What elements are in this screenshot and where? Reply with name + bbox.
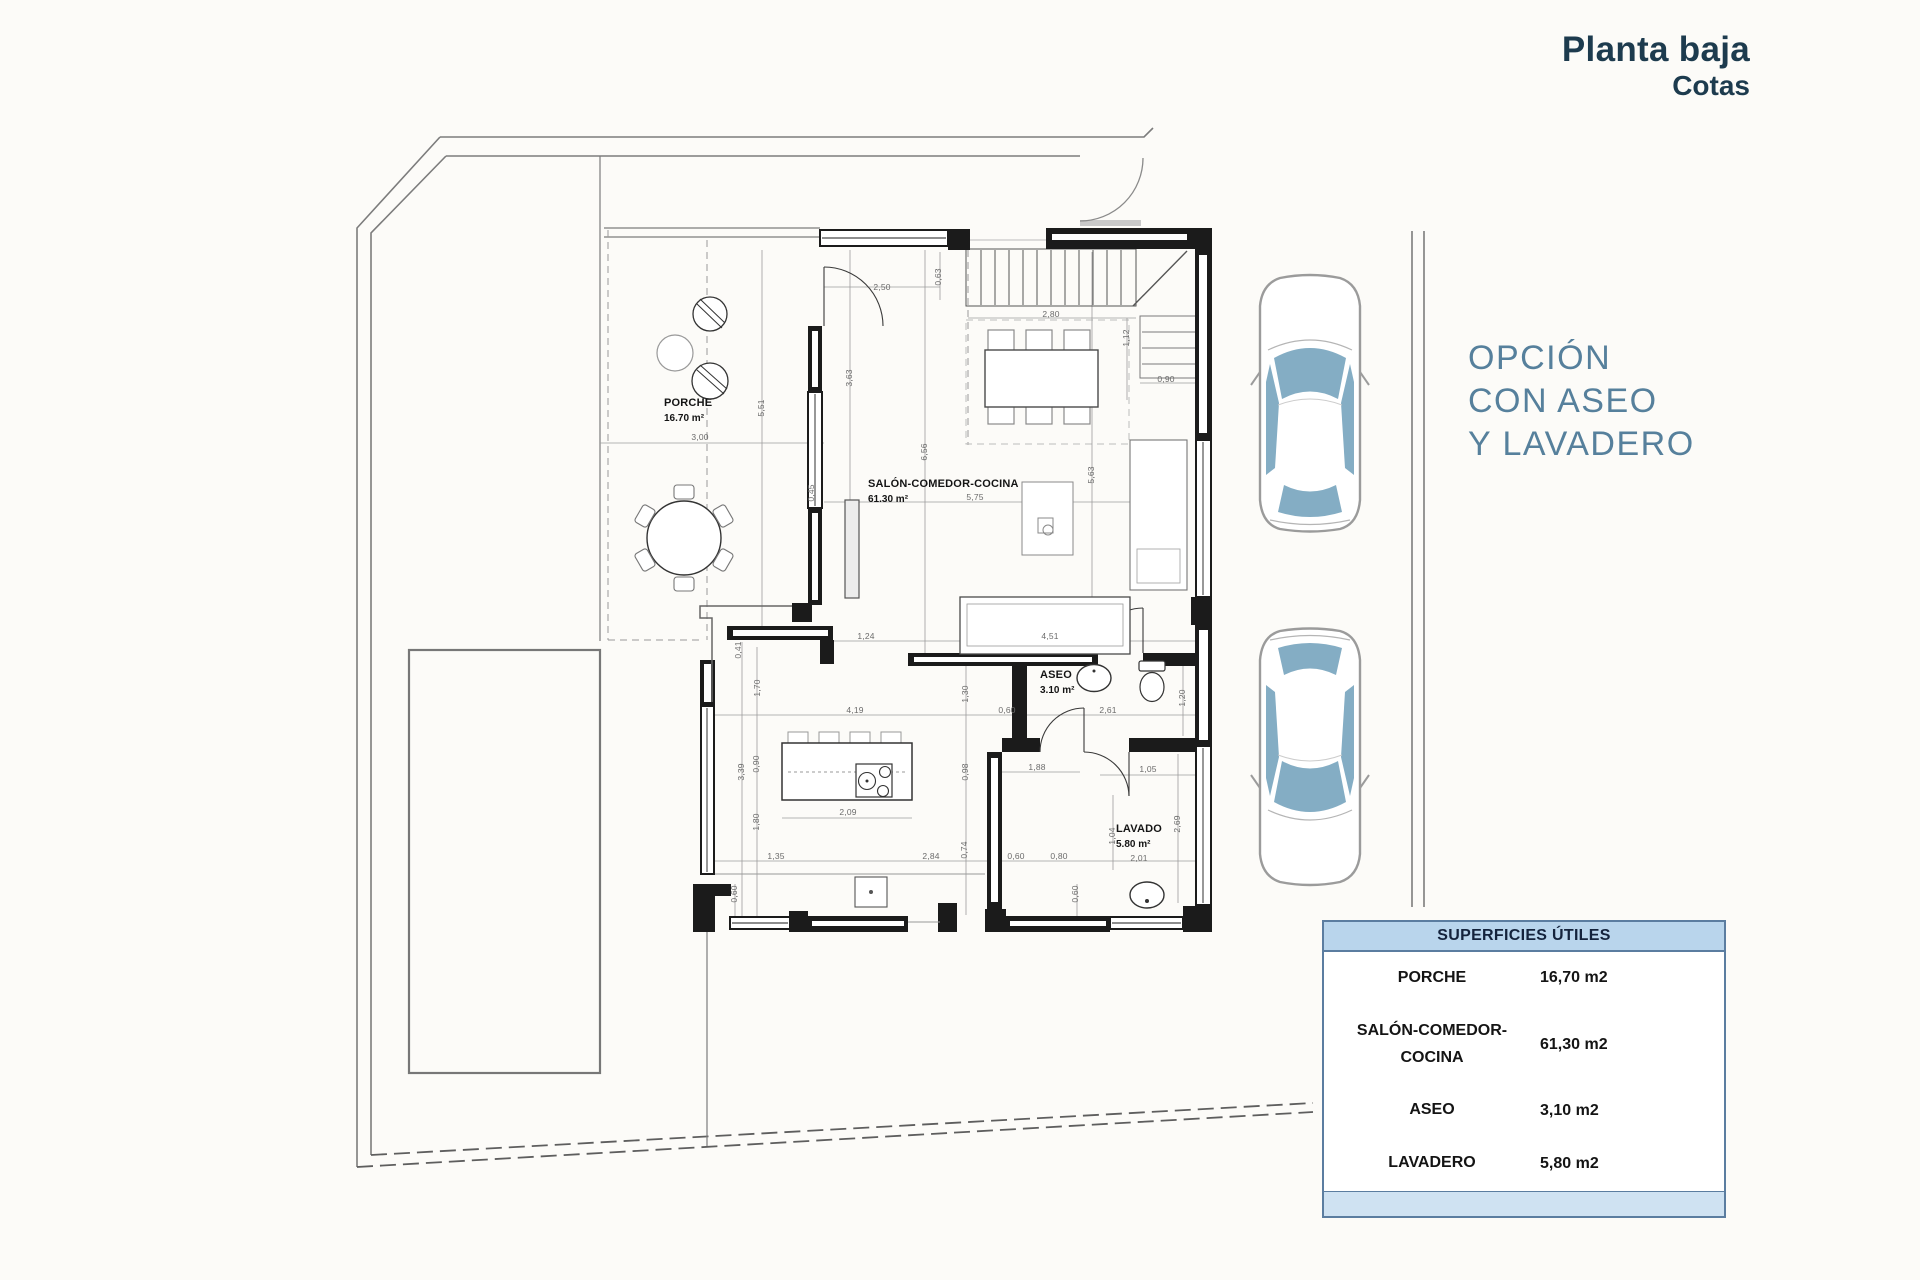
areas-table-header: SUPERFICIES ÚTILES <box>1324 922 1724 952</box>
dining-table-set <box>985 330 1098 424</box>
room-name: PORCHE <box>664 396 712 410</box>
door-swings <box>824 240 1143 922</box>
option-note: OPCIÓN CON ASEO Y LAVADERO <box>1468 337 1695 465</box>
dim-label: 1,88 <box>1028 762 1045 772</box>
room-label-salon: SALÓN-COMEDOR-COCINA61.30 m² <box>868 477 1019 506</box>
dim-label: 0,60 <box>1007 851 1024 861</box>
dim-label: 1,80 <box>751 813 761 830</box>
dim-label: 1,30 <box>960 685 970 702</box>
sheet-title: Planta baja Cotas <box>1562 30 1750 102</box>
areas-table-row-value: 5,80 m2 <box>1540 1155 1599 1173</box>
living-furniture <box>845 440 1187 654</box>
areas-table: SUPERFICIES ÚTILES PORCHE16,70 m2SALÓN-C… <box>1322 920 1726 1218</box>
areas-table-row-value: 3,10 m2 <box>1540 1102 1599 1120</box>
dim-label: 1,70 <box>752 679 762 696</box>
lavadero-fixtures <box>1130 882 1164 908</box>
dim-label: 0,98 <box>960 763 970 780</box>
areas-table-row: ASEO3,10 m2 <box>1324 1097 1724 1123</box>
areas-table-row-label: LAVADERO <box>1324 1150 1540 1176</box>
porch-furniture <box>634 297 734 591</box>
dim-label: 3,00 <box>691 432 708 442</box>
room-area: 5.80 m² <box>1116 838 1162 851</box>
dim-label: 3,63 <box>844 369 854 386</box>
dim-label: 4,51 <box>1041 631 1058 641</box>
dim-label: 1,35 <box>767 851 784 861</box>
dim-label: 2,84 <box>922 851 939 861</box>
dim-label: 0,74 <box>959 841 969 858</box>
areas-table-rows: PORCHE16,70 m2SALÓN-COMEDOR-COCINA61,30 … <box>1324 952 1724 1190</box>
dim-label: 2,09 <box>839 807 856 817</box>
dim-label: 0,60 <box>729 885 739 902</box>
areas-table-row-label: SALÓN-COMEDOR-COCINA <box>1324 1018 1540 1071</box>
dim-label: 2,50 <box>873 282 890 292</box>
room-area: 61.30 m² <box>868 493 1019 506</box>
option-note-line1: OPCIÓN <box>1468 337 1695 380</box>
dim-label: 4,19 <box>846 705 863 715</box>
dim-label: 2,61 <box>1099 705 1116 715</box>
page: { "title": { "line1": "Planta baja", "li… <box>0 0 1920 1280</box>
dim-label: 6,56 <box>919 443 929 460</box>
dim-label: 0,41 <box>733 641 743 658</box>
option-note-line3: Y LAVADERO <box>1468 423 1695 466</box>
sheet-title-main: Planta baja <box>1562 30 1750 70</box>
dim-label: 0,60 <box>1070 885 1080 902</box>
dim-label: 1,24 <box>857 631 874 641</box>
dim-label: 2,01 <box>1130 853 1147 863</box>
areas-table-row: LAVADERO5,80 m2 <box>1324 1150 1724 1176</box>
dim-label: 0,80 <box>1050 851 1067 861</box>
dim-label: 2,69 <box>1172 815 1182 832</box>
room-label-aseo: ASEO3.10 m² <box>1040 668 1074 697</box>
room-name: SALÓN-COMEDOR-COCINA <box>868 477 1019 491</box>
dim-label: 1,04 <box>1107 827 1117 844</box>
dim-label: 5,63 <box>1086 466 1096 483</box>
aseo-fixtures <box>1077 661 1165 702</box>
room-area: 3.10 m² <box>1040 684 1074 697</box>
dim-label: 0,60 <box>998 705 1015 715</box>
dim-label: 2,80 <box>1042 309 1059 319</box>
room-label-porche: PORCHE16.70 m² <box>664 396 712 425</box>
dim-label: 3,39 <box>736 763 746 780</box>
dim-label: 1,12 <box>1121 329 1131 346</box>
room-name: LAVADO <box>1116 822 1162 836</box>
areas-table-footer-band <box>1324 1191 1724 1216</box>
areas-table-row: PORCHE16,70 m2 <box>1324 965 1724 991</box>
areas-table-row-value: 16,70 m2 <box>1540 969 1608 987</box>
areas-table-row: SALÓN-COMEDOR-COCINA61,30 m2 <box>1324 1018 1724 1071</box>
car-1 <box>1251 275 1369 532</box>
car-2 <box>1251 629 1369 886</box>
room-area: 16.70 m² <box>664 412 712 425</box>
areas-table-row-value: 61,30 m2 <box>1540 1036 1608 1054</box>
dim-label: 1,05 <box>1139 764 1156 774</box>
dim-label: 0,90 <box>751 755 761 772</box>
areas-table-row-label: PORCHE <box>1324 965 1540 991</box>
gate-door-swing <box>1080 158 1143 226</box>
pool <box>409 650 600 1073</box>
dim-label: 0,90 <box>1157 374 1174 384</box>
dim-label: 1,20 <box>1177 689 1187 706</box>
room-label-lavado: LAVADO5.80 m² <box>1116 822 1162 851</box>
option-note-line2: CON ASEO <box>1468 380 1695 423</box>
dim-label: 0,63 <box>933 268 943 285</box>
dim-label: 0,45 <box>806 484 816 501</box>
dim-label: 5,51 <box>756 399 766 416</box>
dim-label: 5,75 <box>966 492 983 502</box>
sheet-title-sub: Cotas <box>1562 70 1750 102</box>
room-name: ASEO <box>1040 668 1074 682</box>
areas-table-row-label: ASEO <box>1324 1097 1540 1123</box>
